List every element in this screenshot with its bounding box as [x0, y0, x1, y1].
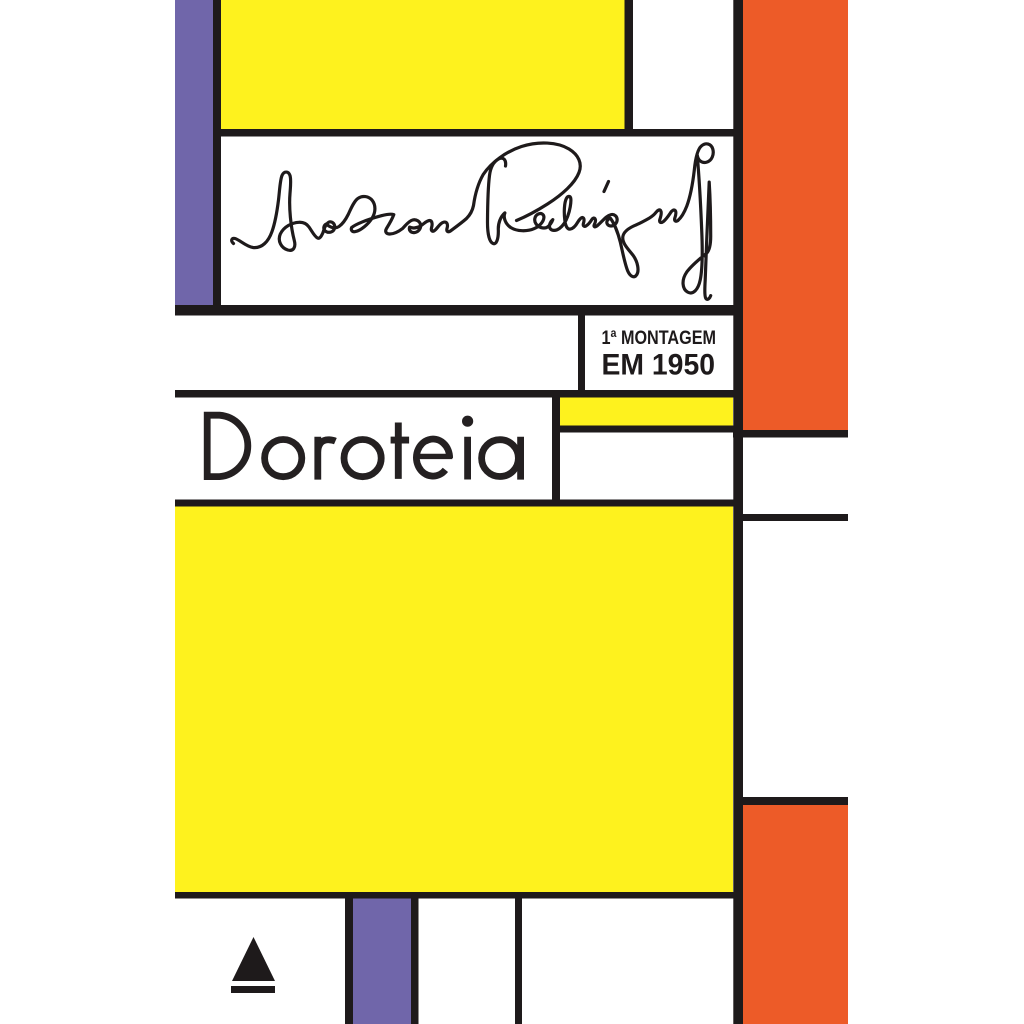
svg-text:1ª MONTAGEM: 1ª MONTAGEM: [602, 328, 717, 349]
svg-text:EM 1950: EM 1950: [602, 349, 716, 382]
